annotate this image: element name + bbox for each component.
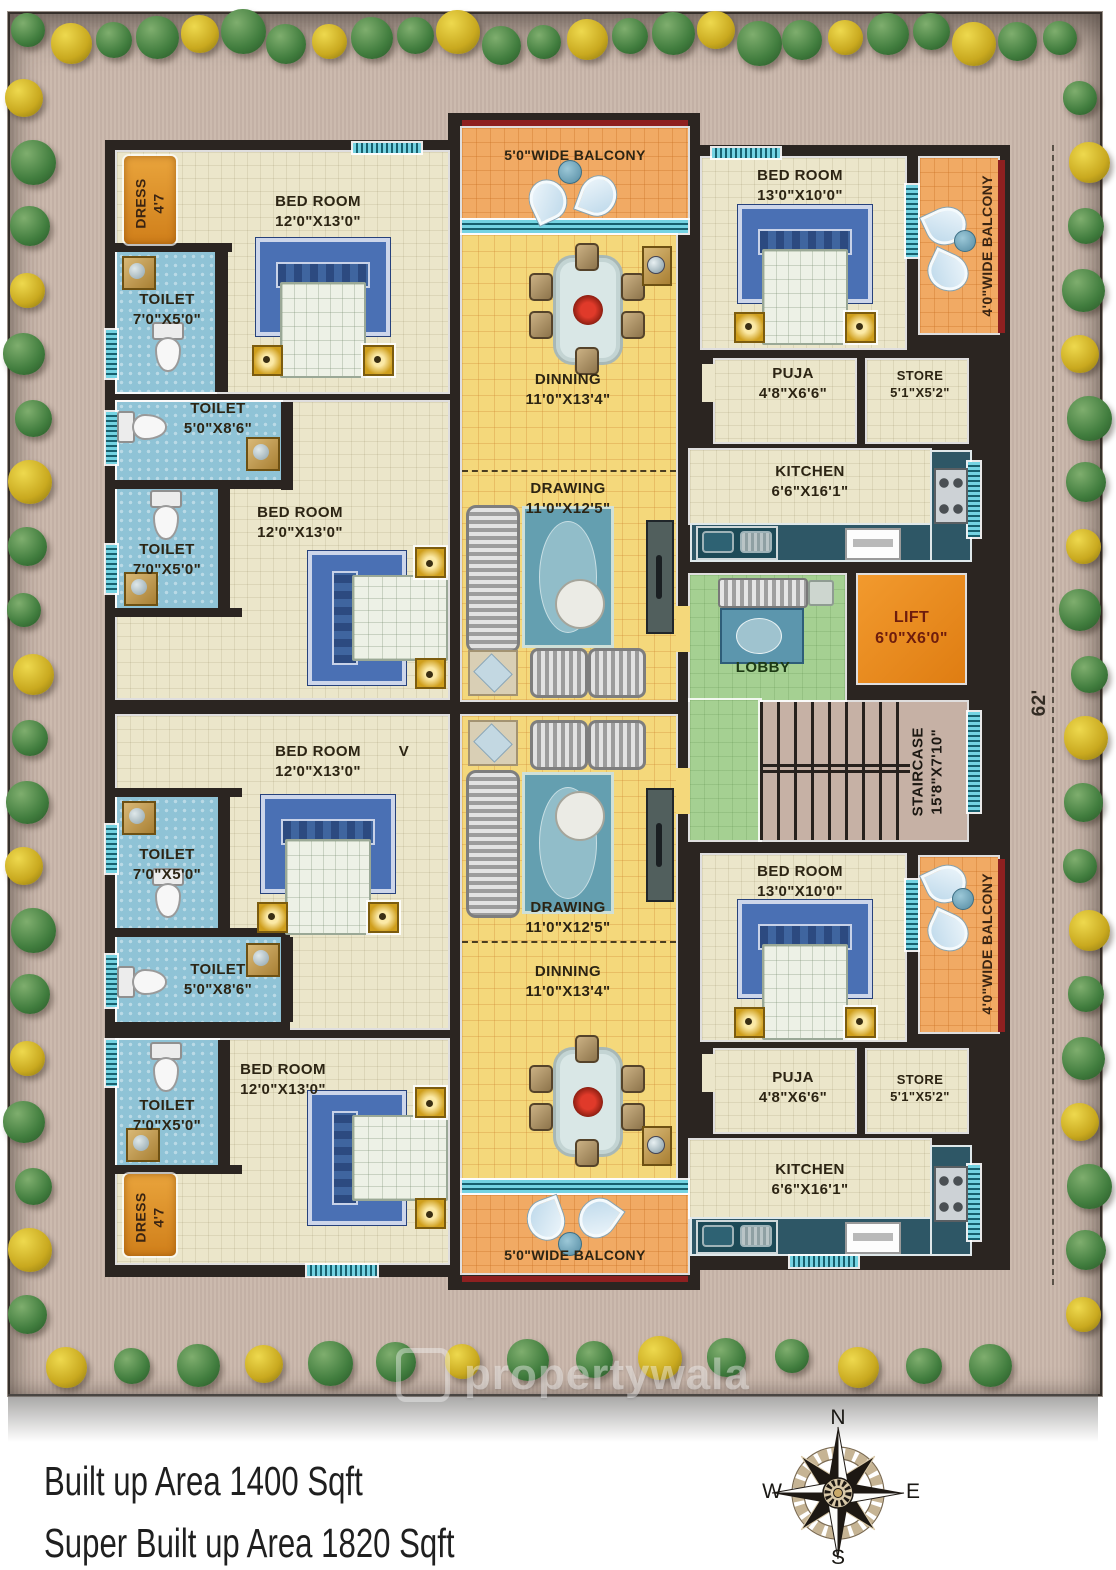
tree-bush: [1061, 1103, 1099, 1141]
tv-unit: [646, 520, 674, 634]
compass-west-label: W: [757, 1480, 787, 1504]
tree-bush: [1043, 21, 1077, 55]
window: [906, 880, 918, 950]
wall: [110, 1022, 290, 1031]
geyser: [246, 437, 280, 471]
tree-bush: [612, 18, 648, 54]
tree-bush: [838, 1347, 879, 1388]
bed: [255, 795, 401, 935]
shoe-rack: [718, 578, 808, 608]
tree-bush: [1062, 1037, 1105, 1080]
room-mark-v: V: [392, 742, 416, 762]
tree-bush: [12, 720, 48, 756]
room-label-dinning-2: DINNING11'0"X13'4": [478, 962, 658, 1002]
room-dims: 6'0"X6'0": [875, 629, 948, 650]
door-opening: [676, 606, 690, 652]
tree-bush: [312, 24, 347, 59]
tree-bush: [13, 654, 54, 695]
tree-bush: [51, 23, 92, 64]
balcony-edge: [462, 1276, 688, 1282]
room-label-toilet-4: TOILET7'0"X5'0": [112, 845, 222, 885]
sofa: [530, 720, 588, 770]
window: [906, 185, 918, 257]
window: [106, 330, 117, 378]
balcony-edge: [998, 160, 1005, 333]
tree-bush: [10, 1041, 45, 1076]
kitchen-sink: [696, 526, 778, 560]
door-opening: [676, 768, 690, 814]
tree-bush: [828, 20, 863, 55]
sofa: [466, 770, 520, 918]
room-label-kitchen-2: KITCHEN6'6"X16'1": [720, 1160, 900, 1200]
room-lift: LIFT 6'0"X6'0": [858, 575, 965, 683]
tree-bush: [969, 1344, 1012, 1387]
tree-bush: [3, 1101, 45, 1143]
tree-bush: [11, 908, 56, 953]
microwave: [845, 528, 901, 560]
geyser: [122, 256, 156, 290]
room-label-staircase: STAIRCASE15'8"X7'10": [909, 702, 947, 842]
room-label-dress-1: DRESS4'7: [133, 161, 168, 247]
room-label-bedroom-1: BED ROOM12'0"X13'0": [238, 192, 398, 232]
watermark-logo-icon: [396, 1348, 450, 1402]
room-label-puja-1: PUJA4'8"X6'6": [723, 364, 863, 404]
wall-clock: [642, 246, 672, 286]
tree-bush: [6, 781, 49, 824]
tree-bush: [782, 20, 822, 60]
tree-bush: [221, 9, 266, 54]
room-label-bedroom-6: BED ROOM13'0"X10'0": [720, 862, 880, 902]
tree-bush: [1063, 849, 1097, 883]
room-label-toilet-5: TOILET5'0"X8'6": [148, 960, 288, 1000]
tree-bush: [906, 1348, 942, 1384]
tree-bush: [867, 13, 909, 55]
room-label-balcony-right-2: 4'0"WIDE BALCONY: [979, 856, 997, 1031]
tree-bush: [998, 22, 1037, 61]
tree-bush: [1069, 910, 1110, 951]
compass-north-label: N: [823, 1406, 853, 1430]
window: [968, 462, 980, 537]
wall: [110, 480, 290, 489]
toilet-wc: [150, 1042, 182, 1092]
room-label-drawing-2: DRAWING11'0"X12'5": [478, 898, 658, 938]
tree-bush: [1069, 142, 1110, 183]
room-label-puja-2: PUJA4'8"X6'6": [723, 1068, 863, 1108]
bed: [732, 900, 878, 1040]
dining-table: [527, 1035, 643, 1163]
room-label-store-2: STORE5'1"X5'2": [865, 1071, 975, 1105]
stair-treads: [760, 702, 910, 840]
window: [307, 1265, 377, 1276]
watermark-text: propertywala: [464, 1350, 750, 1400]
room-label-toilet-3: TOILET7'0"X5'0": [112, 540, 222, 580]
tree-bush: [5, 847, 43, 885]
window: [106, 955, 117, 1007]
tree-bush: [177, 1344, 220, 1387]
tree-bush: [1062, 269, 1105, 312]
tree-bush: [652, 12, 695, 55]
balcony-edge: [462, 120, 688, 126]
tree-bush: [775, 1339, 809, 1373]
tree-bush: [1063, 81, 1097, 115]
plot-dimension-line: [1052, 145, 1054, 1285]
plot-depth-label: 62': [1028, 673, 1052, 733]
tree-bush: [46, 1347, 87, 1388]
tree-bush: [8, 1295, 47, 1334]
corner-table: [468, 650, 518, 696]
window: [462, 220, 688, 233]
tree-bush: [266, 24, 306, 64]
tree-bush: [96, 22, 132, 58]
microwave: [845, 1222, 901, 1254]
tree-bush: [181, 15, 219, 53]
bed: [308, 545, 448, 691]
tree-bush: [136, 16, 179, 59]
tree-bush: [7, 593, 41, 627]
window: [462, 1180, 688, 1193]
tree-bush: [737, 21, 782, 66]
bed: [732, 205, 878, 345]
tree-bush: [1064, 716, 1108, 760]
tree-bush: [114, 1348, 150, 1384]
sofa: [588, 720, 646, 770]
room-label-balcony-top: 5'0"WIDE BALCONY: [470, 146, 680, 164]
tree-bush: [245, 1345, 283, 1383]
built-up-area-text: Built up Area 1400 Sqft: [44, 1458, 363, 1505]
room-label-bedroom-2: BED ROOM12'0"X13'0": [220, 503, 380, 543]
floor-plan-page: 62': [0, 0, 1116, 1570]
corner-table: [468, 720, 518, 766]
tree-bush: [397, 17, 434, 54]
tree-bush: [15, 400, 52, 437]
tree-bush: [952, 22, 996, 66]
tree-bush: [3, 333, 45, 375]
bed: [308, 1085, 448, 1231]
tree-bush: [527, 25, 561, 59]
sofa: [588, 648, 646, 698]
tree-bush: [913, 13, 950, 50]
room-label-kitchen-1: KITCHEN6'6"X16'1": [720, 462, 900, 502]
room-label-dress-2: DRESS4'7: [133, 1175, 168, 1261]
balcony-table: [952, 888, 974, 910]
tree-bush: [1064, 783, 1103, 822]
tree-bush: [10, 974, 50, 1014]
stove: [934, 468, 968, 524]
tree-bush: [8, 1228, 52, 1272]
drawing-rug: [522, 506, 614, 648]
sofa: [530, 648, 588, 698]
wall-clock: [642, 1126, 672, 1166]
tree-bush: [15, 1168, 52, 1205]
drawing-rug: [522, 772, 614, 914]
tree-bush: [1066, 462, 1106, 502]
window: [712, 148, 780, 158]
tv-unit: [646, 788, 674, 902]
tree-bush: [697, 11, 735, 49]
tree-bush: [1059, 589, 1101, 631]
window: [106, 412, 117, 464]
window: [968, 1165, 980, 1240]
watermark: propertywala: [396, 1348, 750, 1402]
bed: [250, 238, 396, 378]
tree-bush: [1066, 1297, 1101, 1332]
tree-bush: [351, 17, 393, 59]
tree-bush: [1068, 976, 1104, 1012]
wall: [110, 243, 232, 252]
room-label-balcony-bottom: 5'0"WIDE BALCONY: [470, 1246, 680, 1264]
room-label-bedroom-5: BED ROOM13'0"X10'0": [720, 166, 880, 206]
tree-bush: [436, 10, 480, 54]
tree-bush: [1071, 656, 1108, 693]
tree-bush: [5, 79, 43, 117]
window: [106, 1040, 117, 1086]
toilet-wc: [150, 490, 182, 540]
tree-bush: [482, 26, 521, 65]
room-label-bedroom-3: BED ROOM12'0"X13'0": [238, 742, 398, 782]
super-built-up-area-text: Super Built up Area 1820 Sqft: [44, 1520, 455, 1567]
tree-bush: [1068, 208, 1104, 244]
tree-bush: [567, 19, 608, 60]
balcony-table: [954, 230, 976, 252]
open-plan-divider: [462, 941, 676, 943]
window: [968, 712, 980, 812]
open-plan-divider: [462, 470, 676, 472]
stair-landing-line: [760, 764, 910, 767]
room-label-toilet-6: TOILET7'0"X5'0": [112, 1096, 222, 1136]
tree-bush: [10, 206, 50, 246]
kitchen-sink: [696, 1220, 778, 1254]
room-label-lift: LIFT 6'0"X6'0": [858, 575, 965, 683]
room-label-lobby: LOBBY: [713, 658, 813, 678]
lobby-rug: [720, 608, 804, 664]
tree-bush: [8, 460, 52, 504]
basket: [808, 580, 834, 606]
tree-bush: [1061, 335, 1099, 373]
room-label-balcony-right-1: 4'0"WIDE BALCONY: [979, 158, 997, 333]
compass-south-label: S: [823, 1546, 853, 1570]
tree-bush: [8, 527, 47, 566]
wall: [110, 608, 242, 617]
stove: [934, 1166, 968, 1222]
sofa: [466, 505, 520, 653]
room-label-bedroom-4: BED ROOM12'0"X13'0": [203, 1060, 363, 1100]
compass-east-label: E: [898, 1480, 928, 1504]
plot-depth-value: 62': [1028, 673, 1052, 733]
room-label-store-1: STORE5'1"X5'2": [865, 367, 975, 401]
window: [353, 143, 421, 153]
tree-bush: [1067, 1164, 1112, 1209]
room-label-toilet-1: TOILET7'0"X5'0": [112, 290, 222, 330]
tree-bush: [1066, 1230, 1106, 1270]
door-opening: [702, 364, 715, 402]
tree-bush: [10, 273, 45, 308]
room-label-drawing-1: DRAWING11'0"X12'5": [478, 479, 658, 519]
window: [790, 1256, 858, 1267]
tree-bush: [1066, 529, 1101, 564]
room-label-toilet-2: TOILET5'0"X8'6": [148, 399, 288, 439]
tree-bush: [11, 140, 56, 185]
tree-bush: [308, 1341, 353, 1386]
balcony-edge: [998, 859, 1005, 1032]
room-name: LIFT: [894, 608, 929, 629]
door-opening: [702, 1054, 715, 1092]
dining-table: [527, 243, 643, 371]
tree-bush: [1067, 396, 1112, 441]
room-label-dinning-1: DINNING11'0"X13'4": [478, 370, 658, 410]
room-lobby: [690, 700, 760, 840]
geyser: [122, 801, 156, 835]
wall: [110, 1165, 242, 1174]
tree-bush: [11, 13, 45, 47]
